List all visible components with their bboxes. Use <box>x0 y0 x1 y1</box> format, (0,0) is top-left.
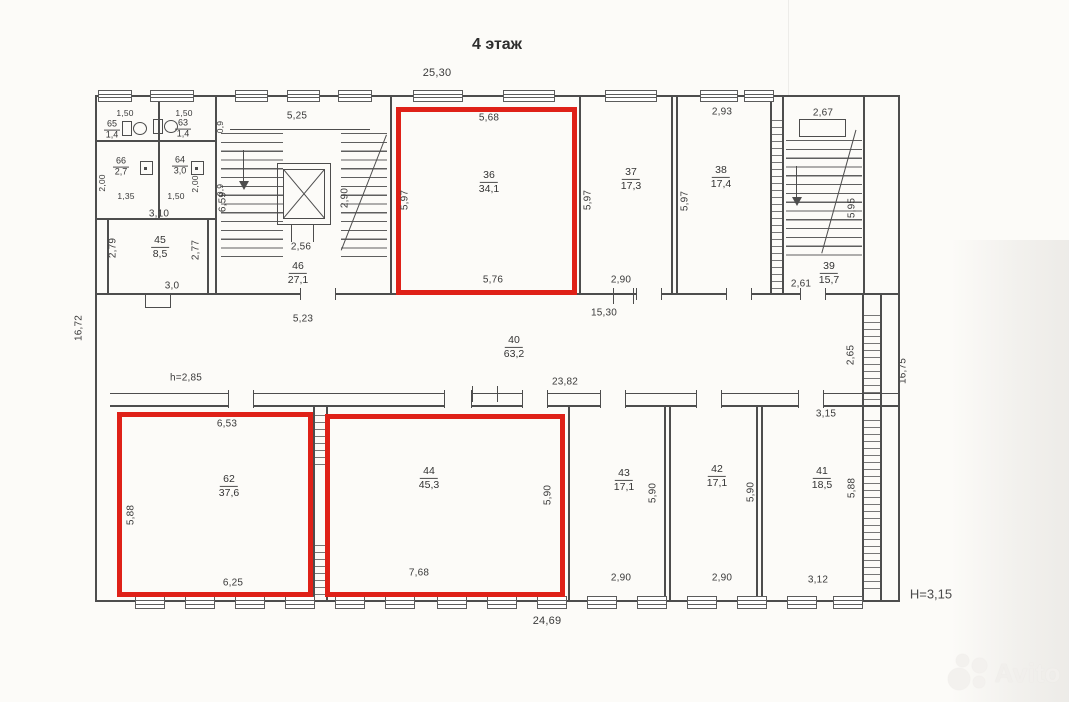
dim-room-45-right: 2,77 <box>191 240 202 260</box>
room-63-area: 1,4 <box>177 130 190 140</box>
stair-landing <box>799 119 846 137</box>
room-38-label: 38 17,4 <box>711 164 731 190</box>
door-opening <box>798 390 824 408</box>
window-symbol <box>338 90 372 102</box>
room-38-number: 38 <box>712 164 730 178</box>
room-40-label: 40 63,2 <box>504 334 524 360</box>
stairs-down-arrow-icon <box>796 166 797 202</box>
window-symbol <box>150 90 194 102</box>
dim-room-36-top: 5,68 <box>479 113 499 124</box>
wall <box>761 405 763 600</box>
wall-outer-right <box>898 95 900 602</box>
window-symbol <box>787 596 817 609</box>
window-symbol <box>235 90 268 102</box>
dim-room-65-top: 1,50 <box>116 108 133 118</box>
room-37-number: 37 <box>622 166 640 180</box>
window-symbol <box>537 596 567 609</box>
avito-logo-icon <box>948 654 988 692</box>
dim-room-42-side: 5,90 <box>746 482 757 502</box>
wall <box>664 405 666 600</box>
highlight-box-room-44 <box>325 414 565 597</box>
stairs-hatching <box>221 133 283 257</box>
room-64-area: 3,0 <box>174 167 187 177</box>
door-opening <box>522 390 548 408</box>
window-symbol <box>287 90 320 102</box>
window-symbol <box>700 90 738 102</box>
room-43-area: 17,1 <box>614 481 634 494</box>
dim-room-42-bottom: 2,90 <box>712 573 732 584</box>
wall-outer-left <box>95 95 97 602</box>
avito-watermark: Avito <box>948 654 1061 692</box>
dim-room-39-bottom: 2,61 <box>791 279 811 290</box>
dim-room-46-top: 5,25 <box>287 111 307 122</box>
dim-room-41-top: 3,15 <box>816 409 836 420</box>
room-45-label: 45 8,5 <box>151 234 169 260</box>
room-43-label: 43 17,1 <box>614 467 634 493</box>
page-title: 4 этаж <box>472 36 522 54</box>
room-46-number: 46 <box>289 260 307 274</box>
room-37-label: 37 17,3 <box>621 166 641 192</box>
room-36-area: 34,1 <box>479 183 499 196</box>
dimension-tick <box>497 386 498 402</box>
dim-corridor-right: 2,65 <box>846 345 857 365</box>
dim-room-62-left: 5,88 <box>126 505 137 525</box>
shaft-column <box>863 315 881 400</box>
floor-height-note: Н=3,15 <box>910 587 952 602</box>
highlight-box-room-62 <box>117 412 313 597</box>
dim-room-66-bottom: 1,35 <box>117 191 134 201</box>
dim-room-45-left: 2,79 <box>108 238 119 258</box>
dim-room-46-lift-width: 2,56 <box>291 242 311 253</box>
dim-room-44-right: 5,90 <box>543 485 554 505</box>
room-39-number: 39 <box>820 260 838 274</box>
room-66-label: 66 2,7 <box>113 157 129 178</box>
ceiling-height-note: h=2,85 <box>170 373 202 384</box>
dim-overall-left: 16,72 <box>74 315 85 341</box>
door-opening <box>228 390 254 408</box>
sink-icon <box>191 161 204 175</box>
window-symbol <box>737 596 767 609</box>
highlight-box-room-36 <box>396 107 577 295</box>
dimension-tick <box>613 288 614 304</box>
wall <box>207 218 209 294</box>
room-63-label: 63 1,4 <box>175 119 191 140</box>
dim-room-45-top: 3,10 <box>149 209 169 220</box>
shaft-column <box>771 120 783 295</box>
window-symbol <box>285 596 315 609</box>
room-36-label: 36 34,1 <box>479 169 499 195</box>
wall <box>669 405 671 600</box>
wall <box>756 405 758 600</box>
window-symbol <box>744 90 774 102</box>
elevator-car <box>283 169 325 219</box>
dim-room-36-left: 5,97 <box>400 190 411 210</box>
window-symbol <box>413 90 463 102</box>
window-symbol <box>587 596 617 609</box>
sink-icon <box>140 161 153 175</box>
room-45-number: 45 <box>151 234 169 248</box>
dim-corridor-bottom: 23,82 <box>552 377 578 388</box>
wall <box>390 95 392 295</box>
window-symbol <box>605 90 657 102</box>
dim-room-37-bottom: 2,90 <box>611 275 631 286</box>
door-opening <box>444 390 472 408</box>
room-40-area: 63,2 <box>504 348 524 361</box>
window-symbol <box>437 596 467 609</box>
room-62-label: 62 37,6 <box>219 473 239 499</box>
wall <box>671 95 673 295</box>
dim-corridor-left: 5,23 <box>293 314 313 325</box>
window-symbol <box>235 596 265 609</box>
room-42-area: 17,1 <box>707 477 727 490</box>
elevator-stem <box>291 225 292 242</box>
dimension-tick <box>633 288 634 304</box>
toilet-icon <box>122 120 148 136</box>
room-39-area: 15,7 <box>819 274 839 287</box>
dim-room-62-bottom: 6,25 <box>223 578 243 589</box>
dim-room-46-lift-side: 2,90 <box>340 188 351 208</box>
window-symbol <box>135 596 165 609</box>
dim-room-46-left: 6,59 <box>218 192 229 212</box>
door-opening <box>726 288 752 300</box>
room-44-area: 45,3 <box>419 479 439 492</box>
room-40-number: 40 <box>505 334 523 348</box>
window-symbol <box>833 596 863 609</box>
wall <box>676 95 678 295</box>
floor-plan-canvas: 4 этаж 25,30 24,69 16,72 16,75 Н=3,15 h=… <box>0 0 1069 702</box>
room-62-number: 62 <box>220 473 238 487</box>
dim-overall-bottom: 24,69 <box>533 615 562 627</box>
dim-room-41-right: 5,88 <box>847 478 858 498</box>
door-opening <box>600 390 626 408</box>
dim-room-64-bottom: 1,50 <box>167 191 184 201</box>
wall <box>863 95 865 295</box>
room-46-label: 46 27,1 <box>288 260 308 286</box>
room-39-label: 39 15,7 <box>819 260 839 286</box>
avito-brand-text: Avito <box>994 658 1061 689</box>
room-44-number: 44 <box>420 465 438 479</box>
room-46-area: 27,1 <box>288 274 308 287</box>
shaft-column <box>863 420 881 592</box>
door-opening <box>300 288 336 300</box>
room-44-label: 44 45,3 <box>419 465 439 491</box>
room-42-label: 42 17,1 <box>707 463 727 489</box>
wall <box>568 405 570 600</box>
door-opening <box>696 390 722 408</box>
window-symbol <box>487 596 517 609</box>
dim-room-39-top: 2,67 <box>813 108 833 119</box>
door-opening <box>800 288 826 300</box>
wall <box>579 95 581 295</box>
window-symbol <box>335 596 365 609</box>
dim-room-63-top: 1,50 <box>175 108 192 118</box>
room-41-area: 18,5 <box>812 479 832 492</box>
dim-room-44-bottom: 7,68 <box>409 568 429 579</box>
room-38-area: 17,4 <box>711 178 731 191</box>
window-symbol <box>385 596 415 609</box>
dimension-tick <box>472 386 473 402</box>
dim-room-66-side: 2,00 <box>97 174 107 191</box>
stair-landing-line <box>230 129 370 130</box>
room-65-label: 65 1,4 <box>104 120 120 141</box>
vestibule <box>145 293 171 308</box>
room-45-area: 8,5 <box>153 248 168 261</box>
dim-room-62-top: 6,53 <box>217 419 237 430</box>
window-symbol <box>98 90 132 102</box>
room-42-number: 42 <box>708 463 726 477</box>
window-symbol <box>687 596 717 609</box>
room-36-number: 36 <box>480 169 498 183</box>
stairs-down-arrow-icon <box>243 150 244 186</box>
dim-room-38-left: 5,97 <box>680 191 691 211</box>
room-66-area: 2,7 <box>115 168 128 178</box>
dim-room-45-bottom: 3,0 <box>165 281 180 292</box>
dim-room-36-bottom: 5,76 <box>483 275 503 286</box>
dim-room-63-door: 0,9 <box>215 121 225 133</box>
dim-room-43-side: 5,90 <box>648 483 659 503</box>
window-symbol <box>185 596 215 609</box>
room-62-area: 37,6 <box>219 487 239 500</box>
wall <box>158 95 160 218</box>
room-64-label: 64 3,0 <box>172 156 188 177</box>
window-symbol <box>503 90 555 102</box>
door-opening <box>636 288 662 300</box>
dim-room-39-side: 5,95 <box>847 198 858 218</box>
room-43-number: 43 <box>615 467 633 481</box>
page-edge-shade <box>950 240 1069 702</box>
dim-room-38-top: 2,93 <box>712 107 732 118</box>
dim-room-41-bottom: 3,12 <box>808 575 828 586</box>
elevator-stem <box>313 225 314 242</box>
dim-room-37-left: 5,97 <box>583 190 594 210</box>
window-symbol <box>637 596 667 609</box>
room-41-label: 41 18,5 <box>812 465 832 491</box>
room-37-area: 17,3 <box>621 180 641 193</box>
dim-corridor-top: 15,30 <box>591 308 617 319</box>
room-65-area: 1,4 <box>106 131 119 141</box>
paper-crease <box>788 0 789 95</box>
dim-room-64-side: 2,00 <box>190 175 200 192</box>
dim-room-43-bottom: 2,90 <box>611 573 631 584</box>
room-41-number: 41 <box>813 465 831 479</box>
dim-overall-top: 25,30 <box>423 67 452 79</box>
